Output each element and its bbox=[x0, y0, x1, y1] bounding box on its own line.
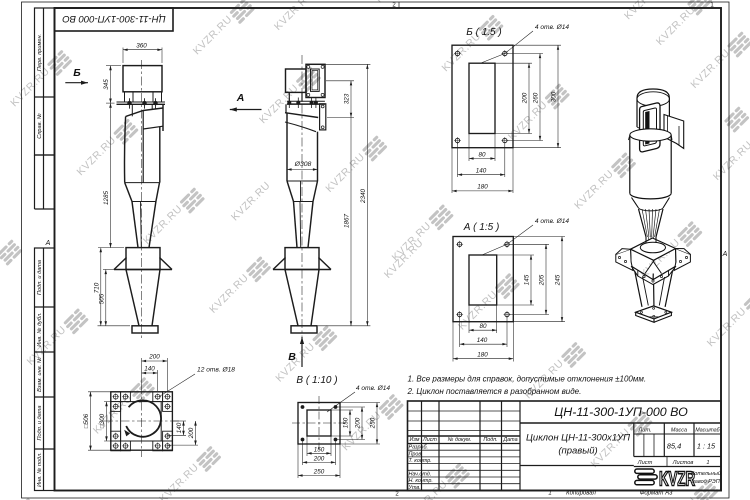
svg-text:150: 150 bbox=[314, 446, 325, 453]
svg-text:Масса: Масса bbox=[671, 428, 687, 434]
svg-text:4 отв. Ø14: 4 отв. Ø14 bbox=[535, 24, 570, 31]
svg-text:205: 205 bbox=[539, 274, 546, 286]
svg-text:360: 360 bbox=[136, 42, 147, 49]
svg-text:Н. контр.: Н. контр. bbox=[409, 478, 433, 484]
svg-text:Котельный: Котельный bbox=[691, 470, 721, 477]
svg-text:В ( 1:10 ): В ( 1:10 ) bbox=[296, 375, 337, 386]
svg-text:Масштаб: Масштаб bbox=[695, 428, 720, 434]
svg-text:завод РЭП: завод РЭП bbox=[691, 479, 719, 485]
svg-text:□506: □506 bbox=[83, 413, 90, 428]
svg-text:№ докум.: № докум. bbox=[448, 437, 472, 443]
svg-text:180: 180 bbox=[477, 352, 488, 359]
svg-text:ЦН-11-300-1УП-000 ВО: ЦН-11-300-1УП-000 ВО bbox=[62, 13, 166, 24]
svg-text:145: 145 bbox=[524, 274, 531, 285]
svg-text:Дата: Дата bbox=[502, 437, 517, 443]
svg-text:Инв. № подл.: Инв. № подл. bbox=[37, 452, 43, 487]
svg-text:Изм: Изм bbox=[410, 437, 420, 443]
svg-text:140: 140 bbox=[144, 366, 155, 373]
svg-text:А ( 1:5 ): А ( 1:5 ) bbox=[463, 222, 500, 233]
svg-text:260: 260 bbox=[533, 92, 540, 104]
svg-text:А: А bbox=[45, 240, 51, 247]
svg-text:85,4: 85,4 bbox=[667, 442, 682, 451]
svg-text:250: 250 bbox=[313, 469, 325, 476]
svg-text:1867: 1867 bbox=[343, 214, 350, 229]
svg-text:345: 345 bbox=[103, 79, 110, 90]
svg-text:4 отв. Ø14: 4 отв. Ø14 bbox=[535, 218, 570, 225]
svg-text:710: 710 bbox=[93, 282, 100, 293]
svg-text:140: 140 bbox=[476, 168, 487, 175]
svg-text:Копировал: Копировал bbox=[566, 491, 596, 497]
svg-text:Нач.отд.: Нач.отд. bbox=[409, 471, 432, 477]
svg-text:2340: 2340 bbox=[360, 189, 367, 205]
svg-text:Перв. примен.: Перв. примен. bbox=[37, 34, 43, 71]
svg-text:Ø308: Ø308 bbox=[294, 161, 312, 168]
svg-text:200: 200 bbox=[522, 92, 529, 104]
svg-text:Лист: Лист bbox=[422, 437, 437, 443]
svg-text:Лист: Лист bbox=[637, 460, 653, 466]
svg-text:4 отв. Ø14: 4 отв. Ø14 bbox=[356, 385, 391, 392]
svg-text:KVZR: KVZR bbox=[659, 469, 695, 491]
svg-text:1 : 15: 1 : 15 bbox=[697, 442, 716, 451]
svg-text:1285: 1285 bbox=[103, 191, 110, 206]
svg-text:1: 1 bbox=[548, 491, 551, 497]
svg-text:(правый): (правый) bbox=[558, 446, 597, 457]
svg-text:Подп. и дата: Подп. и дата bbox=[37, 405, 43, 440]
svg-text:ЦН-11-300-1УП-000 ВО: ЦН-11-300-1УП-000 ВО bbox=[554, 405, 688, 419]
svg-text:Утв.: Утв. bbox=[408, 485, 421, 491]
svg-text:Пров.: Пров. bbox=[409, 451, 423, 457]
svg-text:300: 300 bbox=[551, 91, 558, 102]
svg-text:Б ( 1:5 ): Б ( 1:5 ) bbox=[466, 27, 501, 38]
svg-text:2. Циклон поставляется в р: 2. Циклон поставляется в разобранном вид… bbox=[407, 387, 582, 396]
svg-text:Подп. и дата: Подп. и дата bbox=[37, 260, 43, 295]
svg-text:140: 140 bbox=[477, 337, 488, 344]
svg-text:505: 505 bbox=[98, 293, 105, 304]
svg-text:□300: □300 bbox=[99, 413, 106, 428]
svg-text:200: 200 bbox=[313, 455, 325, 462]
svg-text:150: 150 bbox=[343, 417, 350, 428]
svg-text:Б: Б bbox=[73, 67, 81, 79]
svg-text:А: А bbox=[236, 92, 245, 104]
svg-text:Т. контр.: Т. контр. bbox=[409, 458, 432, 464]
svg-text:80: 80 bbox=[478, 151, 486, 158]
svg-text:Взам. инв. №: Взам. инв. № bbox=[37, 357, 43, 392]
svg-text:1. Все размеры для справок: 1. Все размеры для справок, допустимые о… bbox=[408, 375, 647, 384]
svg-text:200: 200 bbox=[355, 417, 362, 429]
svg-text:Разраб.: Разраб. bbox=[409, 445, 429, 451]
svg-text:Листов: Листов bbox=[672, 460, 694, 466]
svg-text:Формат А3: Формат А3 bbox=[640, 491, 673, 497]
svg-text:200: 200 bbox=[148, 354, 160, 361]
svg-text:245: 245 bbox=[555, 274, 562, 286]
svg-text:Инв. № дубл.: Инв. № дубл. bbox=[37, 312, 43, 346]
svg-text:Циклон ЦН-11-300х1УП: Циклон ЦН-11-300х1УП bbox=[526, 433, 630, 444]
svg-text:12 отв. Ø18: 12 отв. Ø18 bbox=[197, 367, 235, 374]
svg-text:80: 80 bbox=[479, 323, 487, 330]
svg-text:Лит.: Лит. bbox=[637, 428, 651, 434]
svg-text:180: 180 bbox=[477, 184, 488, 191]
svg-text:Справ. №: Справ. № bbox=[37, 113, 43, 138]
svg-text:140: 140 bbox=[176, 422, 183, 433]
svg-text:323: 323 bbox=[344, 93, 351, 104]
svg-text:В: В bbox=[288, 351, 296, 363]
svg-text:200: 200 bbox=[188, 427, 195, 439]
svg-text:250: 250 bbox=[370, 417, 377, 429]
svg-text:А: А bbox=[722, 251, 728, 258]
svg-text:Подп.: Подп. bbox=[483, 437, 497, 443]
svg-text:1: 1 bbox=[706, 460, 709, 466]
